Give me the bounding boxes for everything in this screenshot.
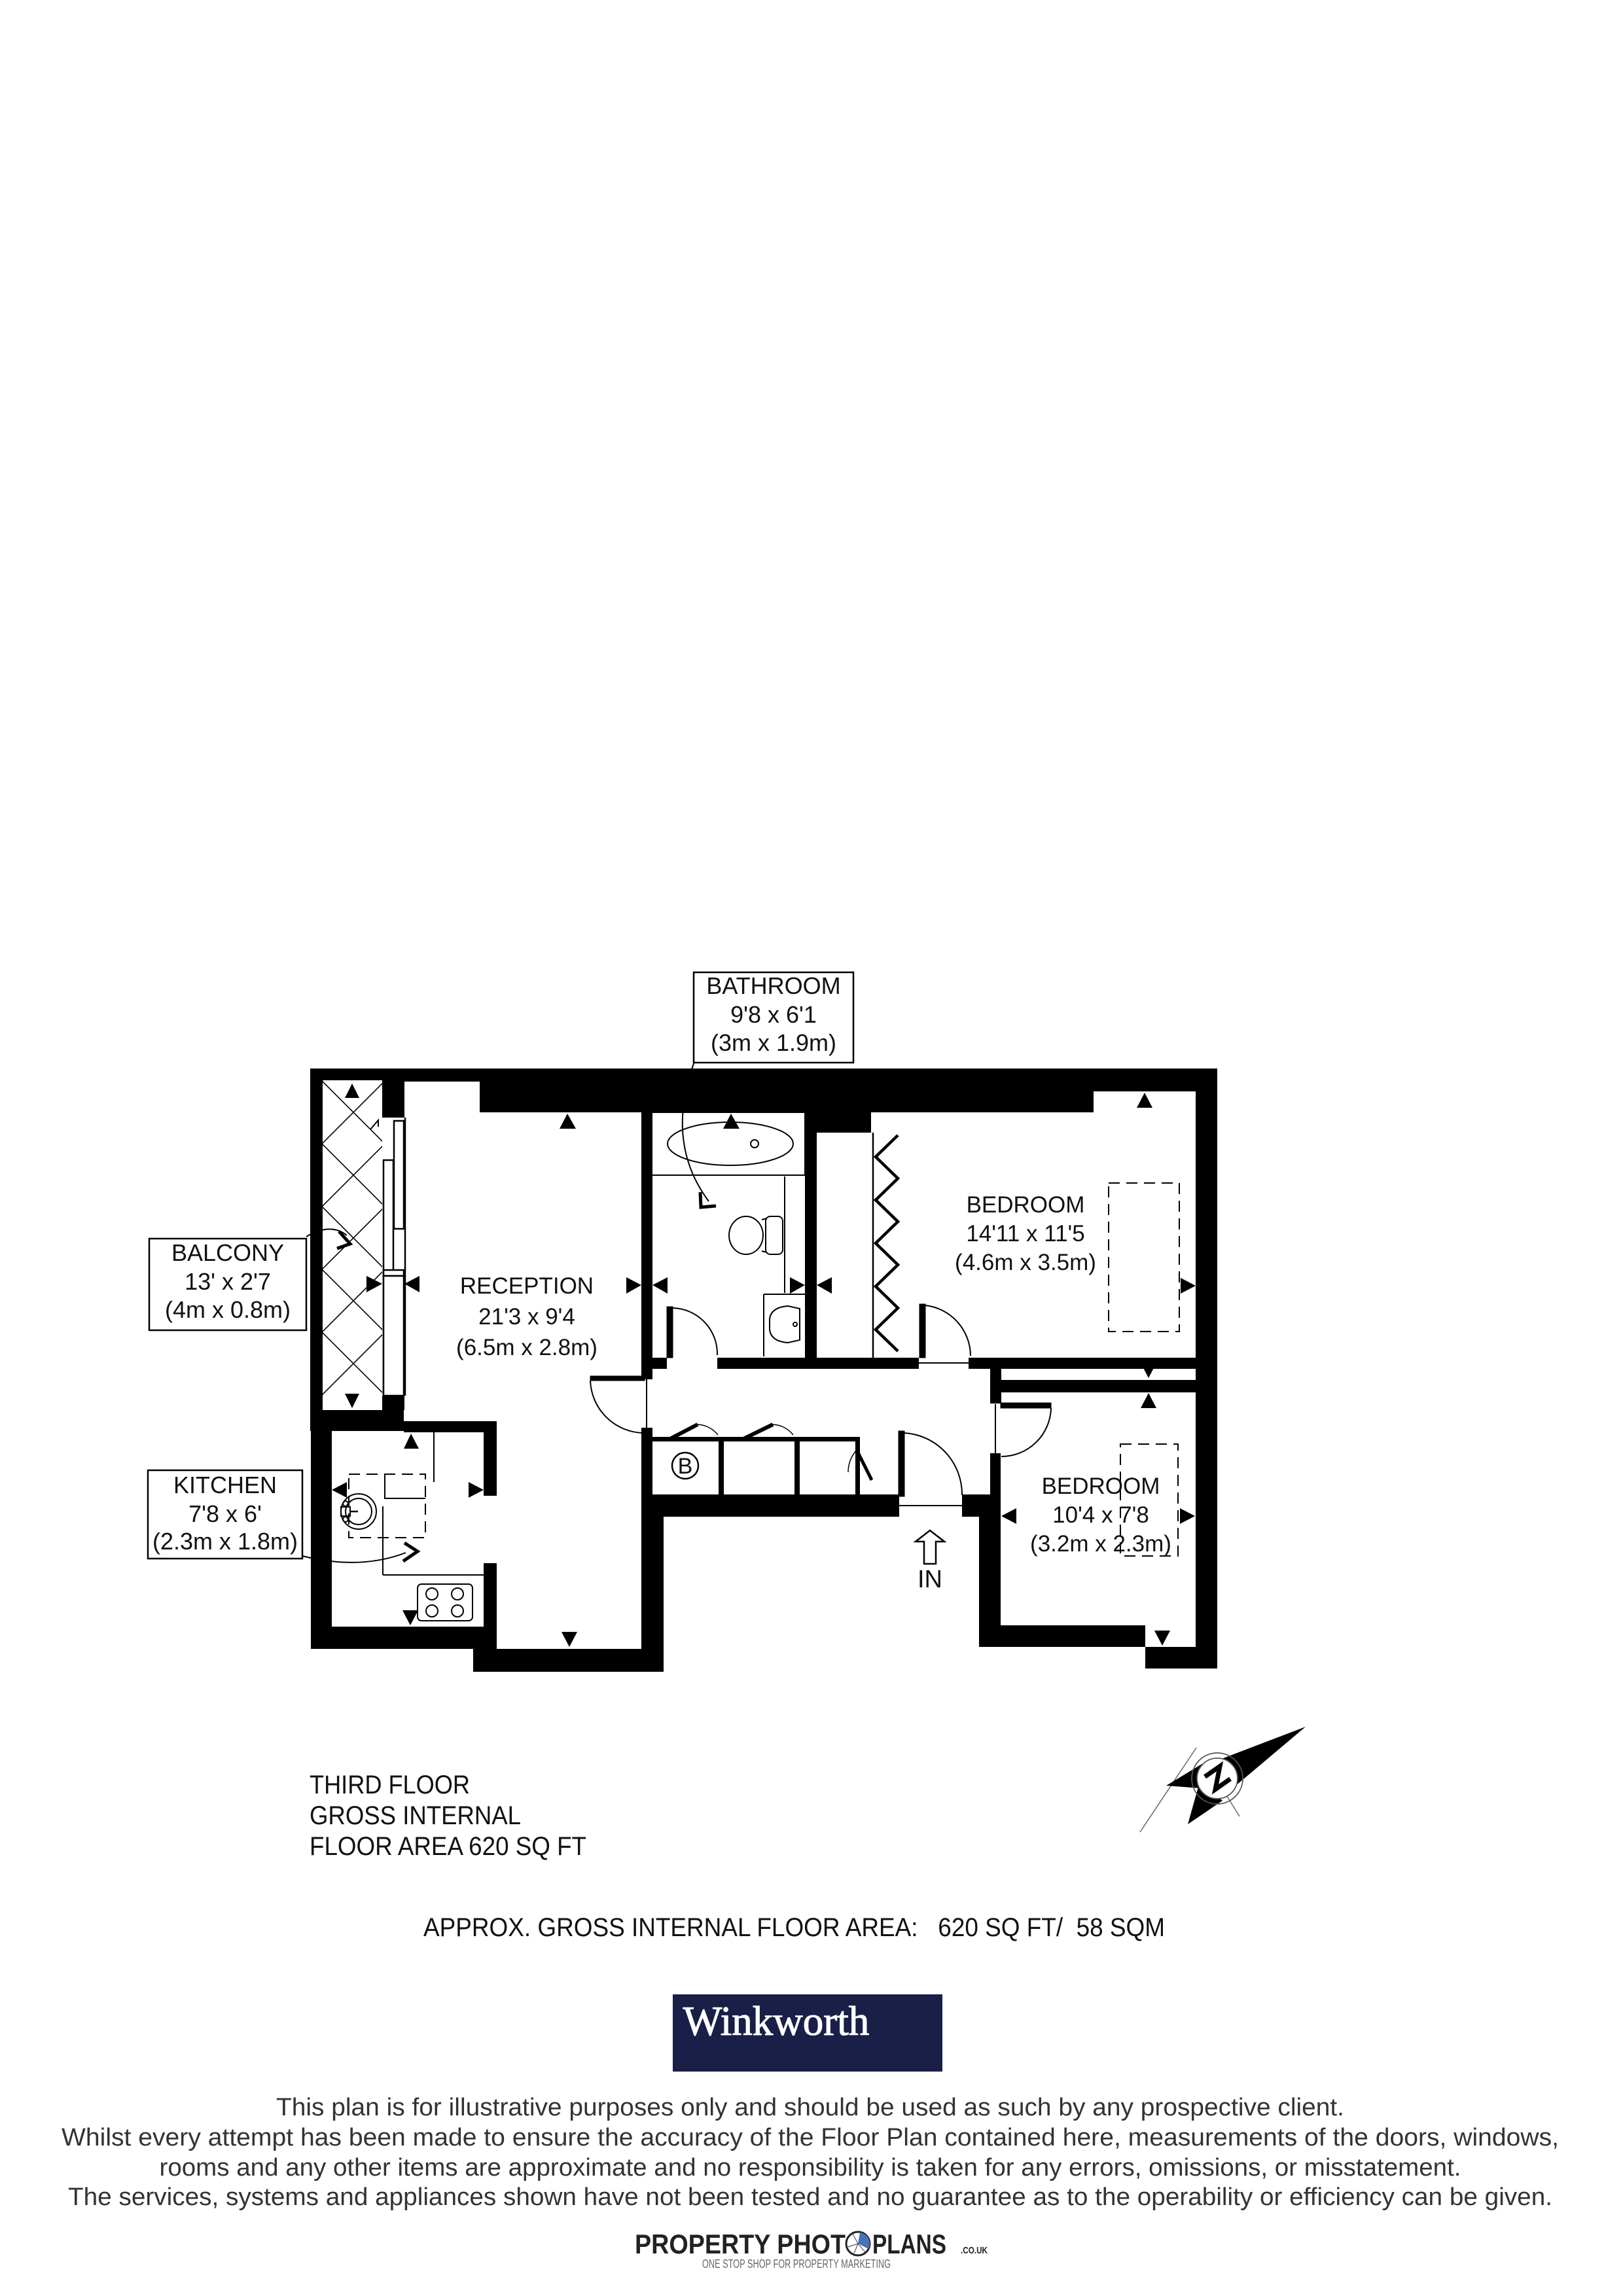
svg-text:KITCHEN: KITCHEN — [173, 1472, 277, 1498]
svg-text:THIRD FLOOR: THIRD FLOOR — [310, 1771, 470, 1799]
svg-text:.CO.UK: .CO.UK — [961, 2245, 988, 2256]
svg-text:PLANS: PLANS — [872, 2229, 946, 2259]
svg-text:(4.6m x 3.5m): (4.6m x 3.5m) — [955, 1250, 1096, 1275]
svg-text:13' x 2'7: 13' x 2'7 — [185, 1268, 271, 1295]
svg-text:B: B — [678, 1454, 693, 1479]
svg-text:(4m x 0.8m): (4m x 0.8m) — [165, 1296, 291, 1323]
svg-text:rooms and any other items are: rooms and any other items are approximat… — [160, 2154, 1461, 2181]
svg-text:(2.3m x 1.8m): (2.3m x 1.8m) — [152, 1528, 298, 1555]
svg-text:10'4 x 7'8: 10'4 x 7'8 — [1052, 1502, 1149, 1528]
svg-text:Whilst every attempt has been: Whilst every attempt has been made to en… — [62, 2124, 1559, 2151]
svg-text:This plan is for illustrative: This plan is for illustrative purposes o… — [276, 2094, 1344, 2121]
svg-text:ONE STOP SHOP FOR PROPERTY MAR: ONE STOP SHOP FOR PROPERTY MARKETING — [702, 2257, 891, 2270]
svg-text:BEDROOM: BEDROOM — [1042, 1474, 1160, 1499]
svg-text:GROSS INTERNAL: GROSS INTERNAL — [310, 1801, 521, 1830]
svg-text:RECEPTION: RECEPTION — [460, 1273, 594, 1299]
svg-text:PROPERTY PHOT: PROPERTY PHOT — [635, 2229, 846, 2259]
svg-text:(3m x 1.9m): (3m x 1.9m) — [711, 1029, 836, 1056]
svg-text:APPROX. GROSS INTERNAL FLOOR A: APPROX. GROSS INTERNAL FLOOR AREA: 620 S… — [423, 1913, 1165, 1942]
svg-text:IN: IN — [918, 1566, 942, 1593]
svg-text:(3.2m x 2.3m): (3.2m x 2.3m) — [1030, 1531, 1171, 1557]
svg-text:BATHROOM: BATHROOM — [706, 972, 840, 999]
svg-text:21'3 x 9'4: 21'3 x 9'4 — [478, 1304, 575, 1330]
svg-text:9'8 x 6'1: 9'8 x 6'1 — [730, 1001, 817, 1028]
svg-text:14'11 x 11'5: 14'11 x 11'5 — [966, 1221, 1084, 1246]
svg-text:BEDROOM: BEDROOM — [967, 1192, 1085, 1218]
svg-text:7'8 x 6': 7'8 x 6' — [188, 1500, 262, 1527]
svg-text:The services, systems and appl: The services, systems and appliances sho… — [68, 2183, 1552, 2211]
svg-text:FLOOR AREA 620 SQ FT: FLOOR AREA 620 SQ FT — [310, 1832, 586, 1861]
svg-text:BALCONY: BALCONY — [171, 1239, 284, 1266]
svg-text:Winkworth: Winkworth — [683, 1998, 869, 2044]
svg-text:(6.5m x 2.8m): (6.5m x 2.8m) — [456, 1335, 597, 1360]
